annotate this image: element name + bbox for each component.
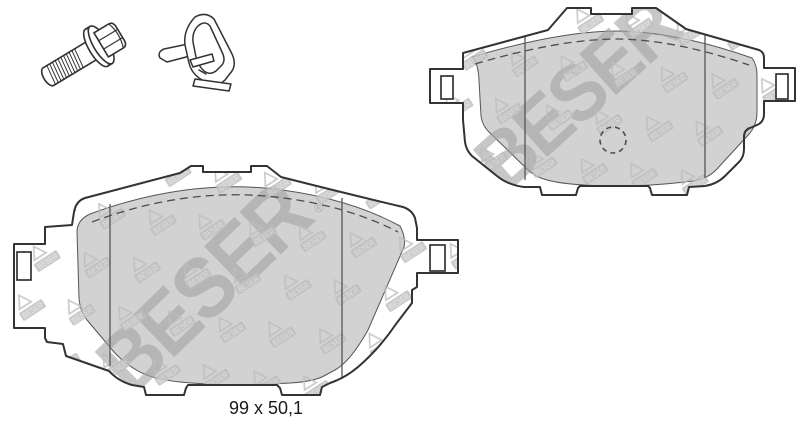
right-ear-notch: [776, 74, 788, 99]
right-ear-notch: [430, 245, 445, 271]
dimension-label: 99 x 50,1: [229, 398, 303, 418]
brake-pad-set-drawing: BESER: [0, 0, 800, 422]
retaining-clip-illustration: [159, 14, 234, 91]
watermark-pattern-overlay: [10, 160, 465, 405]
left-ear-notch: [441, 76, 453, 99]
watermark-pattern-overlay: [420, 0, 800, 210]
brake-pad-small-illustration: BESER: [420, 0, 800, 210]
left-ear-notch: [17, 252, 31, 280]
clip-foot: [193, 79, 231, 91]
flange-bolt-illustration: [33, 15, 131, 98]
brake-pad-large-illustration: BESER ®: [10, 160, 465, 412]
product-illustration: BESER: [0, 0, 800, 422]
